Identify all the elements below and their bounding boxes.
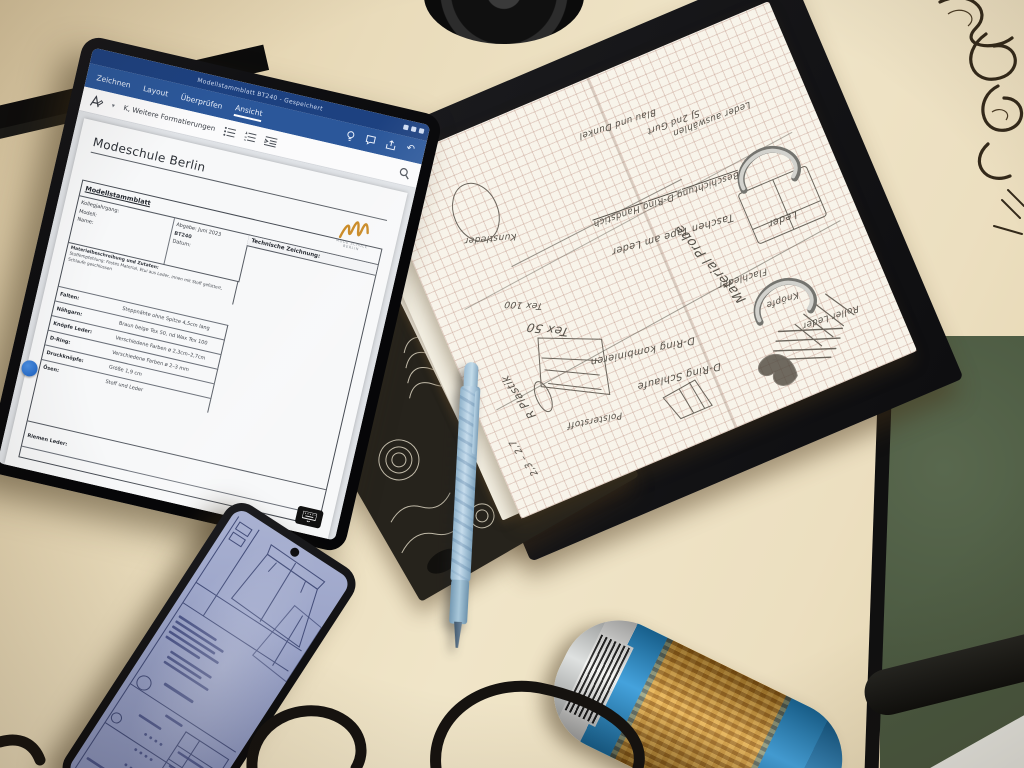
tab-ueberpruefen[interactable]: Überprüfen xyxy=(180,92,223,110)
detail-rows: Falten:Steppnähte ohne Spitze 4,5cm lang… xyxy=(39,286,229,413)
draw-text-icon[interactable] xyxy=(89,94,104,109)
share-icon[interactable] xyxy=(385,139,397,151)
pen-tip xyxy=(453,622,462,648)
bullet-list-icon[interactable] xyxy=(223,126,237,138)
desk-photo: R Plastik 2,3 – 2,7 Polsterstoff Leder T… xyxy=(0,0,1024,768)
undo-icon[interactable]: ↶ xyxy=(405,144,415,156)
indent-icon[interactable] xyxy=(264,136,278,148)
lightbulb-icon[interactable] xyxy=(345,129,356,142)
tape-roll xyxy=(424,0,584,44)
phone-screen xyxy=(66,506,352,768)
can-shading xyxy=(534,601,862,768)
document-canvas: Modeschule Berlin MODE SCHULE BERLIN Mod… xyxy=(0,111,416,541)
model-data-table: Modellstammblatt Kollegjahrgang: Modell:… xyxy=(18,179,382,526)
chevron-down-icon[interactable]: ▾ xyxy=(111,102,116,109)
tab-layout[interactable]: Layout xyxy=(142,83,169,98)
tab-zeichnen[interactable]: Zeichnen xyxy=(96,73,132,90)
tab-ansicht[interactable]: Ansicht xyxy=(234,103,264,122)
search-icon[interactable] xyxy=(398,166,411,179)
word-document-page[interactable]: Modeschule Berlin MODE SCHULE BERLIN Mod… xyxy=(4,118,407,539)
ink-doodle-paper xyxy=(928,0,1024,244)
android-status-icons xyxy=(403,124,425,134)
pen-grip xyxy=(449,579,469,624)
handwritten-note: Tex 100 xyxy=(503,299,543,311)
phone-screen-glare xyxy=(66,506,352,768)
numbered-list-icon[interactable] xyxy=(243,131,257,143)
comment-icon[interactable] xyxy=(364,134,376,146)
pen-plunger xyxy=(463,362,478,389)
drink-can xyxy=(534,601,862,768)
